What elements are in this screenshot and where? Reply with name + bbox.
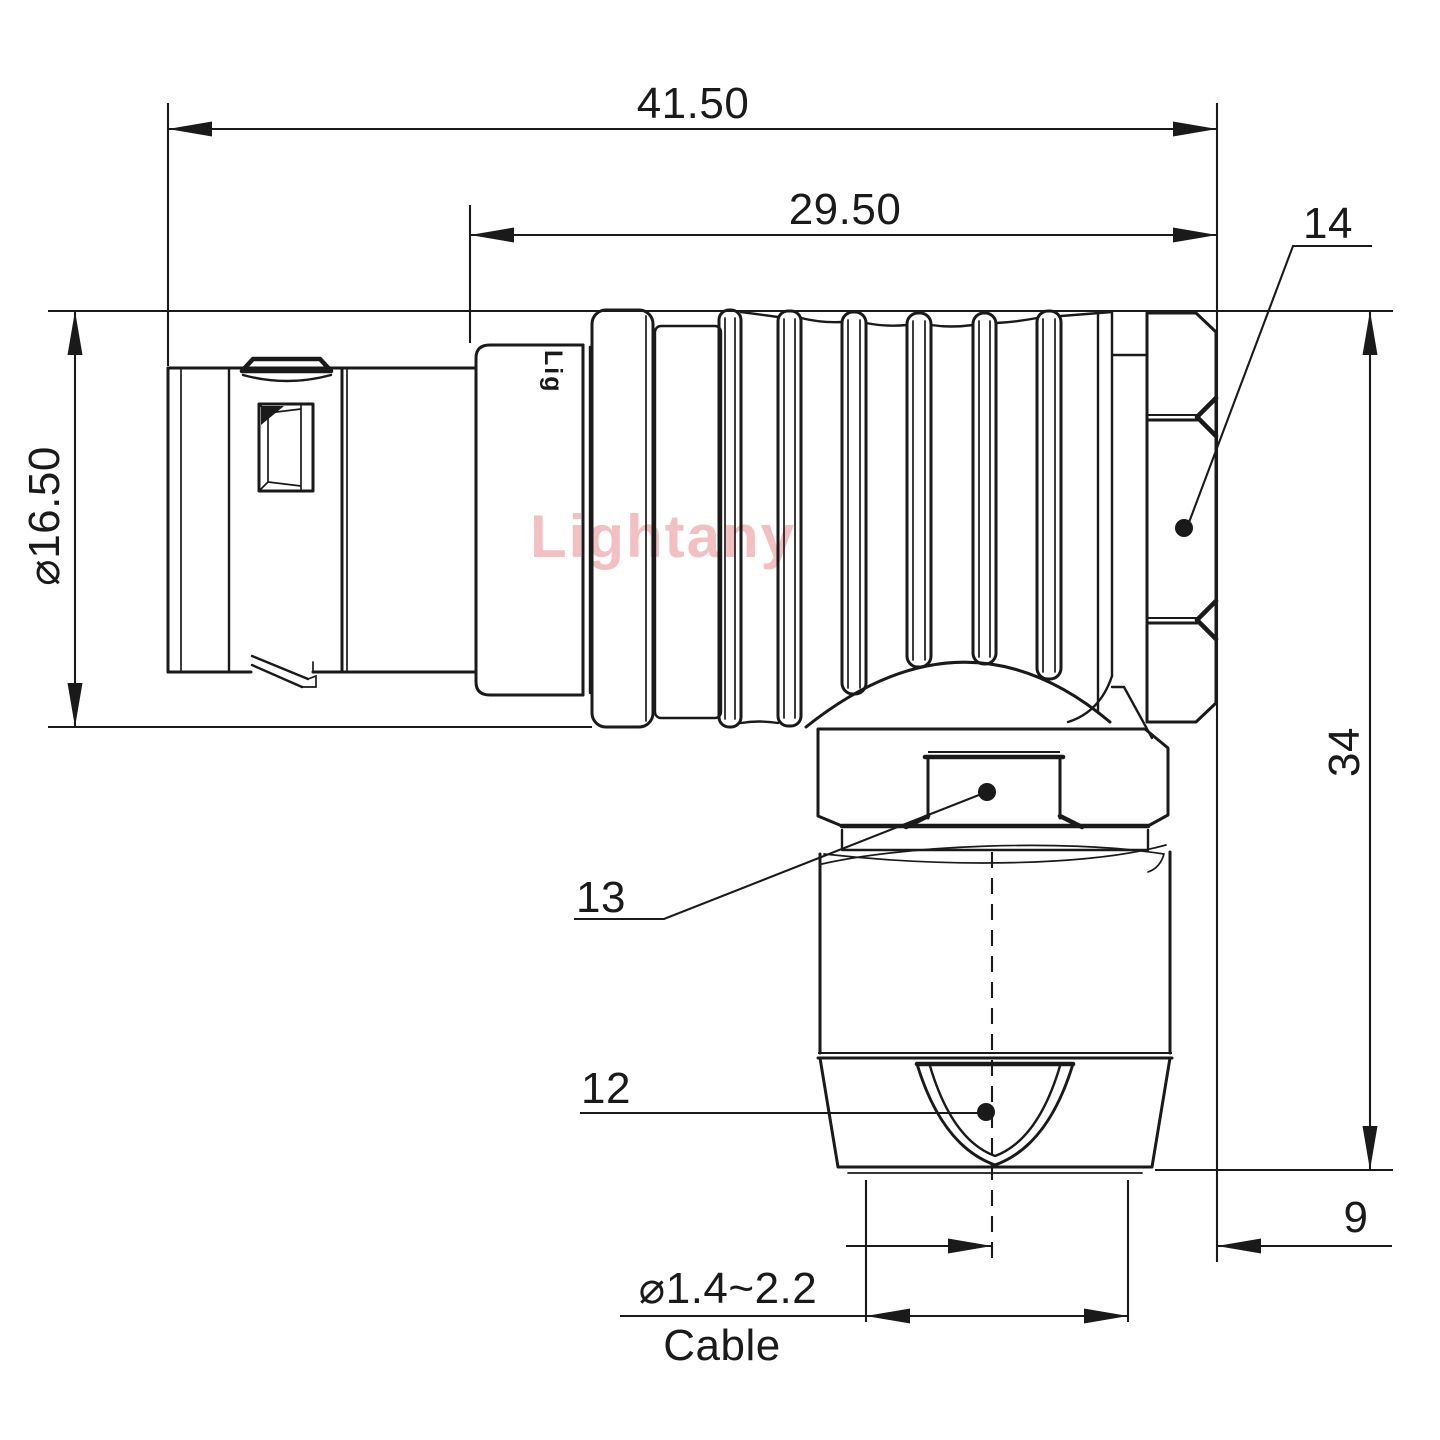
arrowhead-left (470, 228, 514, 243)
arrowhead-right (1217, 1239, 1261, 1254)
sleeve-engraving: Lig (539, 350, 567, 394)
rib (907, 313, 931, 667)
rib (842, 312, 866, 694)
extension-lines (866, 1180, 1128, 1322)
elbow-hex-nut-13 (818, 729, 1168, 872)
plug-barrel (168, 359, 476, 687)
arrowhead-left (168, 122, 212, 137)
dimension-cable-range: ⌀1.4~2.2 Cable (620, 1180, 1128, 1370)
arrowhead-right (1173, 122, 1217, 137)
end-cap-lines (1098, 312, 1112, 713)
arrowhead-bottom (1363, 1126, 1378, 1170)
latch-cap-arc (243, 375, 331, 381)
arrowhead-left (866, 1309, 910, 1324)
callout-text: 12 (581, 1064, 631, 1113)
clamp-sides (820, 852, 1170, 1053)
dimension-text: ⌀16.50 (20, 446, 69, 586)
keyway-slot (259, 404, 313, 491)
arrowhead-left (948, 1239, 992, 1254)
dimension-elbow-height: 34 (1155, 311, 1393, 1170)
dimension-text: 9 (1344, 1193, 1369, 1242)
callout-text: 13 (576, 873, 626, 922)
latch-cap (242, 359, 331, 371)
cable-label-text: Cable (663, 1321, 780, 1370)
dimension-text: 34 (1320, 727, 1369, 777)
extension-lines (168, 103, 1217, 1262)
technical-drawing-page: Lightany Lig (0, 0, 1440, 1440)
dimension-text: 29.50 (789, 185, 902, 234)
arrowhead-right (1173, 228, 1217, 243)
arrowhead-top (1363, 311, 1378, 355)
elbow-transition-arch (806, 662, 1110, 727)
window-inner-curve (930, 1066, 1060, 1156)
latch-wedge (252, 656, 316, 687)
arrowhead-right (1084, 1309, 1128, 1324)
dimension-text: 41.50 (637, 79, 750, 128)
cable-range-text: ⌀1.4~2.2 (639, 1264, 818, 1313)
leader-dot (978, 783, 996, 801)
leader-dot (977, 1103, 995, 1121)
rib (973, 313, 996, 664)
watermark-text: Lightany (530, 503, 796, 570)
arrowhead-bottom (68, 683, 83, 727)
callout-elbow-hex-nut: 13 (574, 783, 996, 922)
connector-dimension-drawing: Lightany Lig (0, 0, 1440, 1440)
coupling-nut-14 (1147, 313, 1216, 722)
hex-outline (818, 729, 1168, 826)
leader-dot (1175, 519, 1193, 537)
window-outer-curve (917, 1064, 1073, 1165)
valley-bottom (741, 722, 778, 724)
callout-text: 14 (1303, 199, 1353, 248)
wedge-lines (252, 656, 308, 687)
nut-outline (1147, 313, 1216, 722)
callout-coupling-nut: 14 (1175, 199, 1372, 537)
strain-relief-ribs (719, 310, 1152, 738)
end-cap-fillet (1068, 676, 1112, 722)
cable-clamp-12 (818, 852, 1172, 1173)
rib (1037, 311, 1061, 679)
leader-line (574, 793, 984, 919)
nut-corner-chamfers (1197, 398, 1216, 639)
nut-facet-lines-thin (1147, 415, 1197, 618)
wedge-tip (302, 662, 316, 687)
arrowhead-top (68, 311, 83, 355)
dimension-axis-offset: 9 (846, 1193, 1392, 1254)
